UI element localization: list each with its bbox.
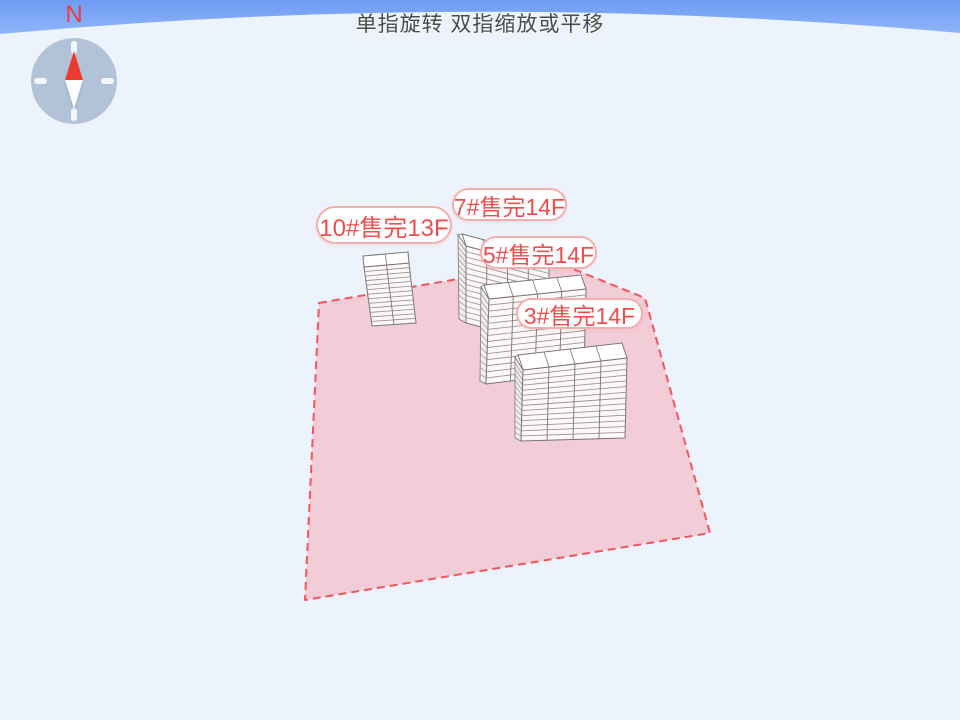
building-model-3[interactable] — [515, 343, 627, 441]
building-label-3-text: 3#售完14F — [524, 297, 635, 331]
building-model-10[interactable] — [363, 252, 416, 326]
building-label-5[interactable]: 5#售完14F — [480, 236, 597, 269]
building-label-3[interactable]: 3#售完14F — [516, 298, 643, 329]
compass[interactable] — [31, 38, 117, 124]
compass-tick-south — [71, 108, 77, 121]
building-label-7-text: 7#售完14F — [454, 188, 565, 222]
building-label-5-text: 5#售完14F — [483, 236, 594, 270]
building-label-10-text: 10#售完13F — [319, 208, 448, 243]
compass-needle-north-icon — [65, 51, 83, 80]
compass-tick-west — [34, 78, 47, 84]
gesture-hint-text: 单指旋转 双指缩放或平移 — [0, 8, 960, 38]
scene-3d-canvas[interactable] — [0, 0, 960, 720]
compass-tick-east — [101, 78, 114, 84]
building-label-7[interactable]: 7#售完14F — [452, 188, 567, 221]
compass-needle-south-icon — [65, 80, 83, 109]
app-viewport: 单指旋转 双指缩放或平移 N 10#售完13F 7#售完14F 5#售完14F … — [0, 0, 960, 720]
building-label-10[interactable]: 10#售完13F — [316, 206, 452, 244]
compass-north-label: N — [31, 1, 117, 29]
